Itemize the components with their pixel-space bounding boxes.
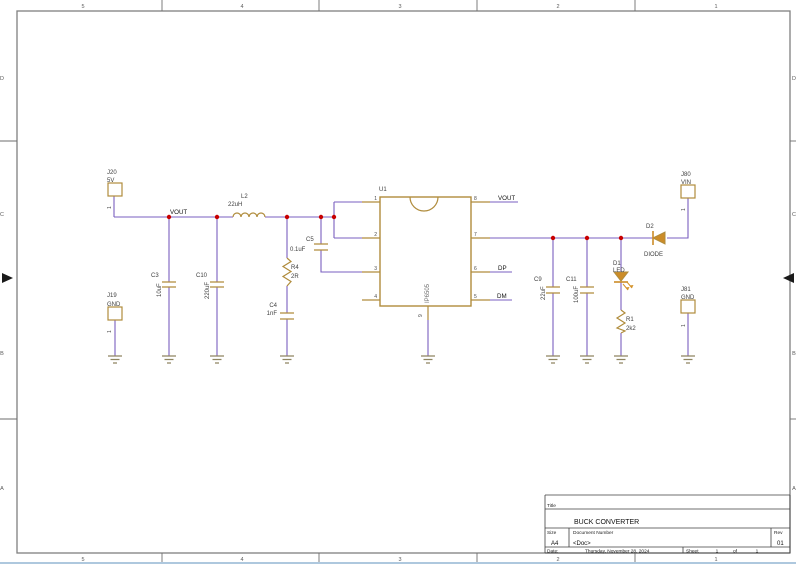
d2-value: DIODE (644, 252, 663, 258)
sheet-number: 1 (716, 549, 719, 555)
c3-value: 10uF (157, 283, 163, 297)
c9-value: 22uF (541, 286, 547, 300)
right-center-arrow-icon (783, 273, 794, 283)
title-block: Title BUCK CONVERTER Size A4 Document Nu… (545, 495, 790, 555)
component-l2[interactable]: L2 22uH (228, 194, 265, 217)
junction-dot (215, 215, 219, 219)
zone-row-left: B (0, 351, 4, 357)
component-d1-led[interactable]: D1 LED (613, 261, 634, 290)
wire-d2-j80[interactable] (667, 198, 688, 238)
component-c10[interactable]: C10 220uF (196, 273, 224, 299)
u1-pin4-number: 4 (374, 294, 377, 300)
net-label-vout[interactable]: VOUT (498, 195, 515, 202)
junction-dot (551, 236, 555, 240)
d1-refdes: D1 (613, 261, 621, 267)
l2-value: 22uH (228, 202, 242, 208)
size-label: Size (547, 530, 557, 536)
zone-col-top: 1 (714, 4, 717, 10)
schematic-sheet: 5 4 3 2 1 5 4 3 2 1 D C B A D C B A (0, 0, 796, 564)
net-label-dp[interactable]: DP (498, 265, 507, 272)
component-r4[interactable]: R4 2R (283, 258, 299, 286)
u1-pin5-number: 5 (474, 294, 477, 300)
j81-pin-number: 1 (681, 324, 687, 327)
c11-refdes: C11 (566, 277, 577, 283)
schematic-editor-canvas: 5 4 3 2 1 5 4 3 2 1 D C B A D C B A (0, 0, 796, 564)
date-value: Thursday, November 28, 2024 (585, 549, 650, 555)
rev-label: Rev (774, 530, 783, 536)
size-value: A4 (551, 541, 559, 547)
net-label-dm[interactable]: DM (497, 293, 507, 300)
r1-value: 2k2 (626, 326, 636, 332)
gnd-symbol[interactable] (614, 356, 628, 363)
c10-refdes: C10 (196, 273, 208, 279)
u1-pin2-number: 2 (374, 232, 377, 238)
component-c9[interactable]: C9 22uF (534, 277, 560, 300)
document-number-label: Document Number (573, 530, 614, 536)
j20-refdes: J20 (107, 170, 117, 176)
component-r1[interactable]: R1 2k2 (617, 310, 636, 333)
component-u1[interactable]: U1 IP6505 1 2 3 4 8 7 6 5 9 (362, 187, 490, 320)
component-d2[interactable]: D2 DIODE (644, 224, 665, 258)
zone-col-top: 3 (398, 4, 401, 10)
sheet-of-label: of (733, 549, 738, 555)
wire-c5-u1pin3[interactable] (321, 250, 362, 272)
component-c4[interactable]: C4 1nF (267, 303, 294, 319)
r4-refdes: R4 (291, 265, 299, 271)
gnd-symbol[interactable] (162, 356, 176, 363)
u1-pin8-number: 8 (474, 196, 477, 202)
component-c5[interactable]: C5 0.1uF (290, 237, 328, 253)
c5-refdes: C5 (306, 237, 314, 243)
c11-value: 100uF (574, 286, 580, 303)
j20-pin-number: 1 (107, 206, 113, 209)
zone-row-left: A (0, 486, 4, 492)
c4-refdes: C4 (269, 303, 277, 309)
r4-value: 2R (291, 274, 299, 280)
gnd-symbol[interactable] (546, 356, 560, 363)
zone-col-top: 5 (81, 4, 84, 10)
j20-value: 5V (107, 178, 114, 184)
zone-col-top: 2 (556, 4, 559, 10)
zone-row-right: A (792, 486, 796, 492)
c5-value: 0.1uF (290, 247, 306, 253)
j19-pin-number: 1 (107, 330, 113, 333)
gnd-symbol[interactable] (580, 356, 594, 363)
junction-dot (319, 215, 323, 219)
junction-dot (585, 236, 589, 240)
gnd-symbol[interactable] (421, 356, 435, 363)
l2-refdes: L2 (241, 194, 248, 200)
zone-col-top: 4 (240, 4, 243, 10)
u1-pin9-number: 9 (418, 314, 424, 317)
r1-refdes: R1 (626, 317, 634, 323)
zone-row-left: C (0, 212, 4, 218)
u1-refdes: U1 (379, 187, 387, 193)
c4-value: 1nF (267, 311, 278, 317)
j80-refdes: J80 (681, 172, 691, 178)
gnd-symbol[interactable] (280, 356, 294, 363)
d2-refdes: D2 (646, 224, 654, 230)
gnd-symbol[interactable] (108, 356, 122, 363)
j19-refdes: J19 (107, 293, 117, 299)
u1-part-number: IP6505 (425, 283, 431, 303)
u1-pin6-number: 6 (474, 266, 477, 272)
j81-value: GND (681, 295, 695, 301)
gnd-symbol[interactable] (681, 356, 695, 363)
date-label: Date: (547, 549, 558, 555)
sheet-label: Sheet (686, 549, 699, 555)
component-c11[interactable]: C11 100uF (566, 277, 594, 303)
document-number-value: <Doc> (573, 541, 591, 547)
u1-pin7-number: 7 (474, 232, 477, 238)
zone-row-right: B (792, 351, 796, 357)
junction-dot (619, 236, 623, 240)
j19-value: GND (107, 302, 121, 308)
sheet-title: BUCK CONVERTER (574, 519, 639, 526)
d1-value: LED (613, 268, 625, 274)
rev-value: 01 (777, 541, 784, 547)
j81-refdes: J81 (681, 287, 691, 293)
c3-refdes: C3 (151, 273, 159, 279)
j80-value: VIN (681, 180, 691, 186)
ground-symbols[interactable] (108, 356, 695, 363)
zone-row-right: C (792, 212, 796, 218)
net-label-vout-rail[interactable]: VOUT (170, 209, 187, 216)
u1-pin1-number: 1 (374, 196, 377, 202)
sheet-total: 1 (756, 549, 759, 555)
zone-row-right: D (792, 76, 796, 82)
led-emission-arrows-icon (623, 282, 634, 290)
c9-refdes: C9 (534, 277, 542, 283)
junction-dot (285, 215, 289, 219)
title-label: Title (547, 503, 556, 509)
u1-pin3-number: 3 (374, 266, 377, 272)
left-center-arrow-icon (2, 273, 13, 283)
component-c3[interactable]: C3 10uF (151, 273, 176, 297)
zone-row-left: D (0, 76, 4, 82)
gnd-symbol[interactable] (210, 356, 224, 363)
junction-dot (332, 215, 336, 219)
c10-value: 220uF (205, 282, 211, 299)
j80-pin-number: 1 (681, 208, 687, 211)
